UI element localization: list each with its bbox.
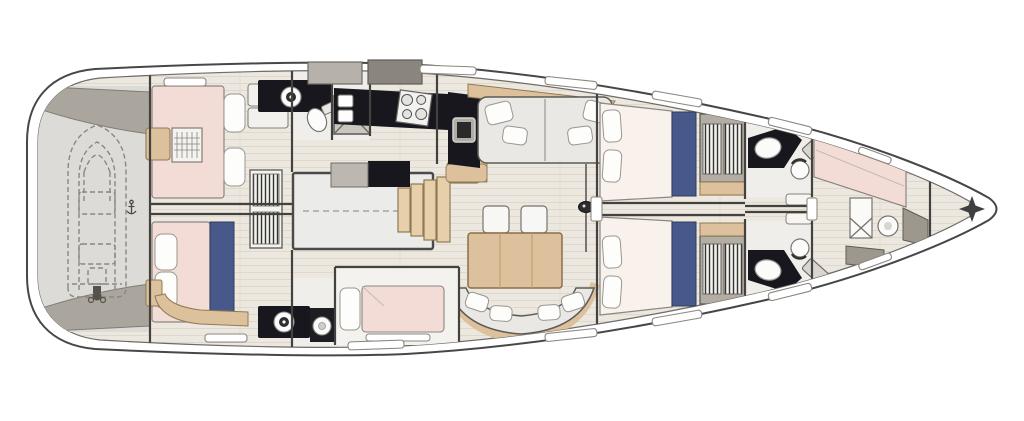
toilet	[791, 239, 809, 257]
hanging-clothes	[724, 244, 742, 294]
hanging-clothes	[703, 124, 721, 174]
stove-top	[396, 90, 432, 126]
chair	[483, 206, 509, 233]
step	[424, 180, 436, 240]
pillow	[602, 149, 622, 182]
pillow	[602, 109, 622, 142]
cockpit-hatch	[308, 62, 362, 84]
window-slit	[205, 334, 247, 342]
mast-highlight	[583, 205, 586, 208]
step	[398, 188, 410, 232]
chair	[521, 206, 547, 233]
pillow	[224, 148, 245, 186]
crew-chair	[850, 198, 872, 238]
pillow	[602, 235, 622, 268]
pillow	[155, 234, 177, 270]
faucet-dot	[282, 320, 285, 323]
tender-garage: Transom tender garage Stowed dinghy (das…	[30, 86, 150, 332]
toilet	[791, 161, 809, 179]
galley-sink: Galley double sink	[338, 95, 353, 107]
wardrobe-shelf	[700, 182, 745, 195]
toilet-lid	[319, 323, 326, 330]
pillow	[489, 305, 512, 321]
bookshelf: Centerline bookshelf	[250, 170, 282, 248]
floorplan-svg: Hull outline Side deck Transom tender ga…	[0, 0, 1024, 421]
pillow	[538, 304, 561, 320]
wardrobe-shelf	[700, 223, 745, 236]
aft-cabin-starboard: Aft cabin (starboard) — double berth wit…	[146, 222, 248, 326]
hanging-clothes	[724, 124, 742, 174]
berth-mattress	[362, 286, 444, 332]
berth-pillow	[340, 288, 360, 330]
bed-runner-blue	[672, 222, 696, 306]
step	[437, 177, 450, 242]
counter-trim-bottom	[446, 164, 487, 182]
bed-runner-blue	[672, 112, 696, 196]
bed-runner-blue	[210, 222, 234, 316]
counter-gray-mid	[331, 163, 368, 187]
cockpit-hatch	[368, 60, 422, 84]
pillow	[567, 125, 593, 145]
galley-sink	[338, 110, 353, 122]
stove: Four-burner stove	[396, 90, 432, 126]
books-bottom	[253, 212, 279, 244]
window-slit	[348, 340, 404, 350]
door-leaf	[591, 197, 602, 221]
pillow	[224, 94, 245, 132]
fridge-door	[457, 122, 471, 138]
door-leaf	[807, 198, 817, 220]
wardrobe-starboard	[700, 223, 745, 304]
window-slit	[420, 65, 476, 75]
dining-table: Dining table	[468, 233, 562, 288]
counter-dark-mid	[368, 161, 410, 187]
yacht-floorplan: Hull outline Side deck Transom tender ga…	[0, 0, 1024, 421]
crew-toilet-lid	[884, 222, 892, 230]
wardrobe-port: Hanging wardrobe	[700, 114, 745, 195]
step	[411, 184, 423, 236]
pillow	[502, 125, 528, 145]
books-top	[253, 174, 279, 206]
pillow	[602, 275, 622, 308]
single-berth-cabin: Mid single-berth cabin	[335, 267, 459, 345]
window-slit	[164, 78, 206, 86]
hanging-clothes	[703, 244, 721, 294]
